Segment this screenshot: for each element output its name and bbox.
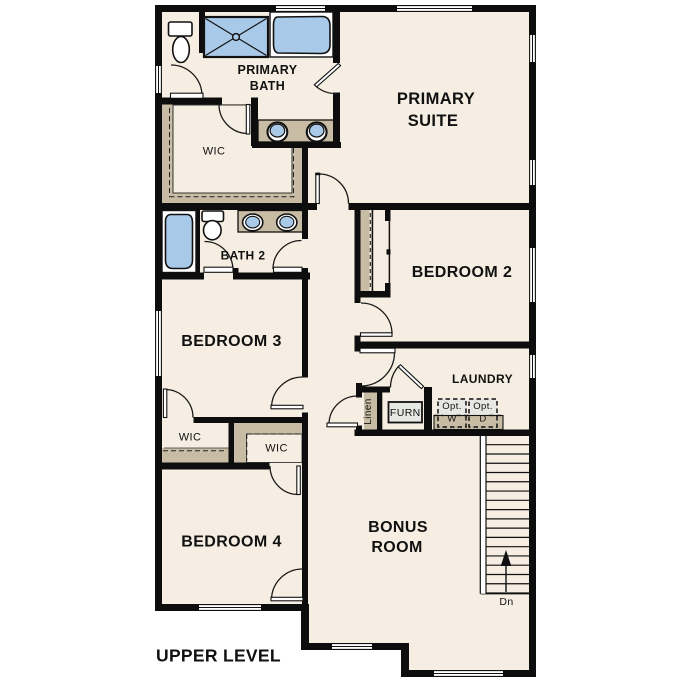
- svg-text:W: W: [447, 414, 456, 425]
- svg-text:BEDROOM 4: BEDROOM 4: [181, 534, 282, 551]
- svg-text:UPPER LEVEL: UPPER LEVEL: [156, 646, 281, 666]
- svg-text:PRIMARY: PRIMARY: [397, 90, 475, 108]
- svg-text:BEDROOM 3: BEDROOM 3: [181, 333, 282, 350]
- svg-text:BONUS: BONUS: [368, 519, 428, 536]
- svg-text:D: D: [479, 414, 486, 425]
- svg-text:PRIMARY: PRIMARY: [238, 63, 298, 77]
- svg-text:ROOM: ROOM: [371, 539, 422, 556]
- svg-text:Dn: Dn: [499, 596, 513, 608]
- svg-text:WIC: WIC: [265, 443, 288, 455]
- svg-text:SUITE: SUITE: [408, 112, 459, 130]
- svg-text:FURN: FURN: [390, 407, 421, 419]
- svg-text:WIC: WIC: [179, 432, 202, 444]
- svg-text:LAUNDRY: LAUNDRY: [452, 372, 513, 386]
- svg-text:WIC: WIC: [203, 146, 226, 158]
- svg-text:BATH 2: BATH 2: [221, 249, 266, 263]
- svg-text:BEDROOM 2: BEDROOM 2: [412, 264, 513, 281]
- svg-text:Linen: Linen: [363, 398, 374, 424]
- svg-text:Opt.: Opt.: [442, 401, 462, 412]
- svg-text:Opt.: Opt.: [473, 401, 493, 412]
- svg-text:BATH: BATH: [250, 79, 285, 93]
